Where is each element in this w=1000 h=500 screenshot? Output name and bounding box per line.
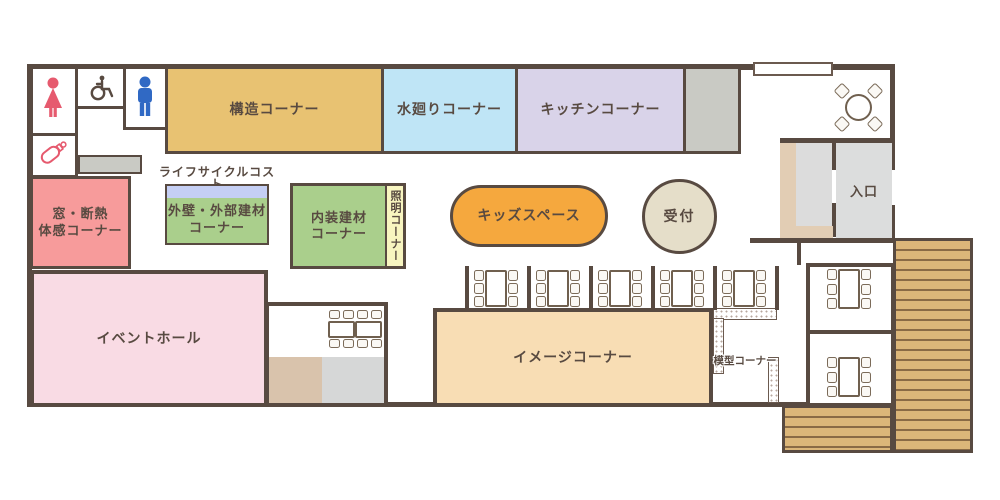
chair (861, 357, 871, 368)
chair (660, 270, 670, 281)
room-kitchen-corner: キッチンコーナー (515, 66, 686, 154)
table (328, 321, 355, 338)
chair (827, 357, 837, 368)
table (355, 321, 382, 338)
chair (598, 296, 608, 307)
chair (343, 339, 354, 348)
chair (570, 296, 580, 307)
chair (598, 270, 608, 281)
chair (508, 283, 518, 294)
room-kids-space: キッズスペース (450, 185, 608, 247)
meeting-rooms-divider (806, 330, 895, 334)
chair (867, 116, 884, 133)
chair (508, 296, 518, 307)
chair (632, 296, 642, 307)
booth-partition (713, 266, 717, 310)
chair (694, 283, 704, 294)
chair (834, 83, 851, 100)
chair (508, 270, 518, 281)
table (485, 270, 507, 307)
chair (861, 284, 871, 295)
chair (329, 339, 340, 348)
chair (861, 386, 871, 397)
chair (570, 283, 580, 294)
gray-block-top (683, 66, 741, 154)
entrance-beige-column (780, 143, 796, 238)
chair (474, 270, 484, 281)
entrance-gray-inner (796, 143, 832, 226)
chair (329, 310, 340, 319)
chair (861, 269, 871, 280)
woman-icon (40, 77, 66, 121)
table (547, 270, 569, 307)
annex-gray-block (322, 357, 384, 403)
chair (570, 270, 580, 281)
chair (357, 339, 368, 348)
chair (722, 283, 732, 294)
chair (371, 310, 382, 319)
chair (834, 116, 851, 133)
chair (343, 310, 354, 319)
table (671, 270, 693, 307)
chair (660, 283, 670, 294)
annex-tan-block (269, 357, 322, 403)
chair (632, 270, 642, 281)
man-icon (132, 76, 158, 120)
chair (756, 270, 766, 281)
chair (827, 372, 837, 383)
room-water-corner: 水廻りコーナー (381, 66, 518, 154)
booth-partition (465, 266, 469, 310)
table (609, 270, 631, 307)
chair (474, 296, 484, 307)
chair (827, 269, 837, 280)
chair (722, 270, 732, 281)
room-image-corner: イメージコーナー (433, 308, 713, 407)
chair (867, 83, 884, 100)
chair (536, 270, 546, 281)
booth-partition (589, 266, 593, 310)
room-reception: 受付 (642, 179, 717, 254)
chair (722, 296, 732, 307)
chair (660, 296, 670, 307)
gray-block-restroom (78, 155, 142, 174)
deck-right (893, 238, 973, 453)
room-window-insulation-corner: 窓・断熱 体感コーナー (30, 176, 131, 269)
booth-partition (527, 266, 531, 310)
chair (598, 283, 608, 294)
chair (827, 284, 837, 295)
chair (371, 339, 382, 348)
floor-plan: 構造コーナー 水廻りコーナー キッチンコーナー 窓・断熱 体感コーナー ライフサ… (0, 0, 1000, 500)
wall-opening (753, 62, 833, 76)
booth-partition (775, 266, 779, 310)
chair (827, 386, 837, 397)
chair (536, 296, 546, 307)
wall-reception-bottom (750, 238, 895, 243)
chair (827, 298, 837, 309)
model-corner-label: 模型コーナー (705, 353, 785, 368)
chair (474, 283, 484, 294)
table (838, 269, 860, 309)
wheelchair-icon (86, 74, 114, 102)
chair (756, 283, 766, 294)
chair (861, 372, 871, 383)
table (838, 357, 860, 397)
room-structure-corner: 構造コーナー (165, 66, 384, 154)
chair (756, 296, 766, 307)
chair (632, 283, 642, 294)
chair (694, 296, 704, 307)
room-lighting-corner: 照明コーナー (385, 186, 403, 266)
chair (536, 283, 546, 294)
chair (861, 298, 871, 309)
booth-partition (651, 266, 655, 310)
table (733, 270, 755, 307)
wall-stub (797, 241, 801, 265)
chair (694, 270, 704, 281)
chair (357, 310, 368, 319)
lifecycle-booth-header (167, 186, 267, 198)
entrance-beige-bottom (780, 226, 833, 238)
room-event-hall: イベントホール (30, 270, 268, 407)
round-table (845, 94, 872, 121)
deck-bottom (782, 405, 893, 453)
room-entrance: 入口 (836, 143, 892, 238)
